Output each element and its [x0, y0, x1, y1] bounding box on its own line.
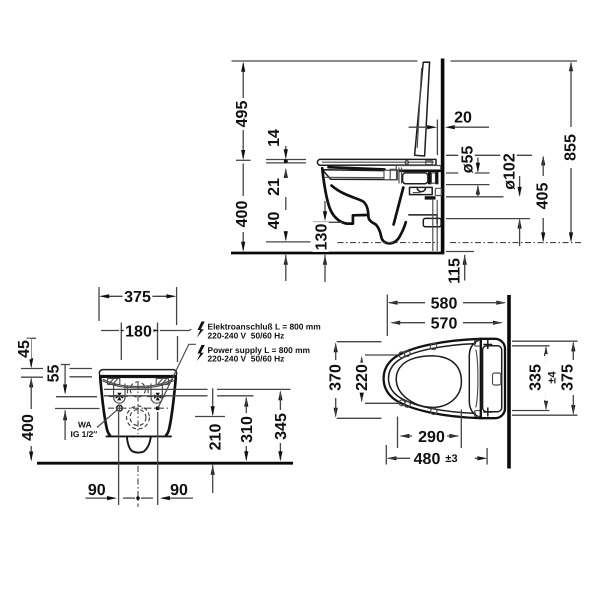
svg-text:20: 20 — [454, 109, 472, 126]
svg-text:14: 14 — [266, 129, 283, 147]
svg-text:55: 55 — [45, 365, 62, 383]
svg-text:90: 90 — [88, 482, 106, 499]
svg-text:ø102: ø102 — [501, 153, 518, 190]
svg-text:405: 405 — [534, 183, 551, 210]
svg-text:±4: ±4 — [546, 371, 558, 384]
svg-text:495: 495 — [234, 101, 251, 128]
svg-text:855: 855 — [562, 134, 579, 161]
svg-text:210: 210 — [207, 424, 224, 451]
svg-text:375: 375 — [559, 364, 576, 391]
svg-text:45: 45 — [16, 340, 33, 358]
svg-text:375: 375 — [124, 289, 151, 306]
svg-text:345: 345 — [273, 413, 290, 440]
svg-text:220-240 V 50/60 Hz: 220-240 V 50/60 Hz — [208, 330, 285, 340]
svg-text:IG 1/2″: IG 1/2″ — [71, 429, 98, 439]
svg-text:220: 220 — [354, 364, 371, 391]
svg-text:115: 115 — [446, 258, 463, 284]
svg-text:40: 40 — [266, 212, 283, 230]
svg-text:310: 310 — [239, 416, 256, 443]
svg-text:±3: ±3 — [445, 453, 457, 465]
svg-text:370: 370 — [327, 364, 344, 391]
svg-text:90: 90 — [170, 482, 188, 499]
svg-text:400: 400 — [20, 414, 37, 441]
svg-text:290: 290 — [418, 429, 445, 446]
svg-text:130: 130 — [313, 224, 330, 251]
svg-text:570: 570 — [431, 315, 458, 332]
svg-text:400: 400 — [234, 201, 251, 228]
svg-text:180: 180 — [125, 323, 152, 340]
svg-text:480: 480 — [414, 451, 441, 468]
svg-text:ø55: ø55 — [459, 146, 476, 174]
svg-text:21: 21 — [266, 178, 283, 196]
svg-text:335: 335 — [527, 364, 544, 391]
svg-text:580: 580 — [431, 295, 458, 312]
svg-text:220-240 V 50/60 Hz: 220-240 V 50/60 Hz — [208, 354, 285, 364]
